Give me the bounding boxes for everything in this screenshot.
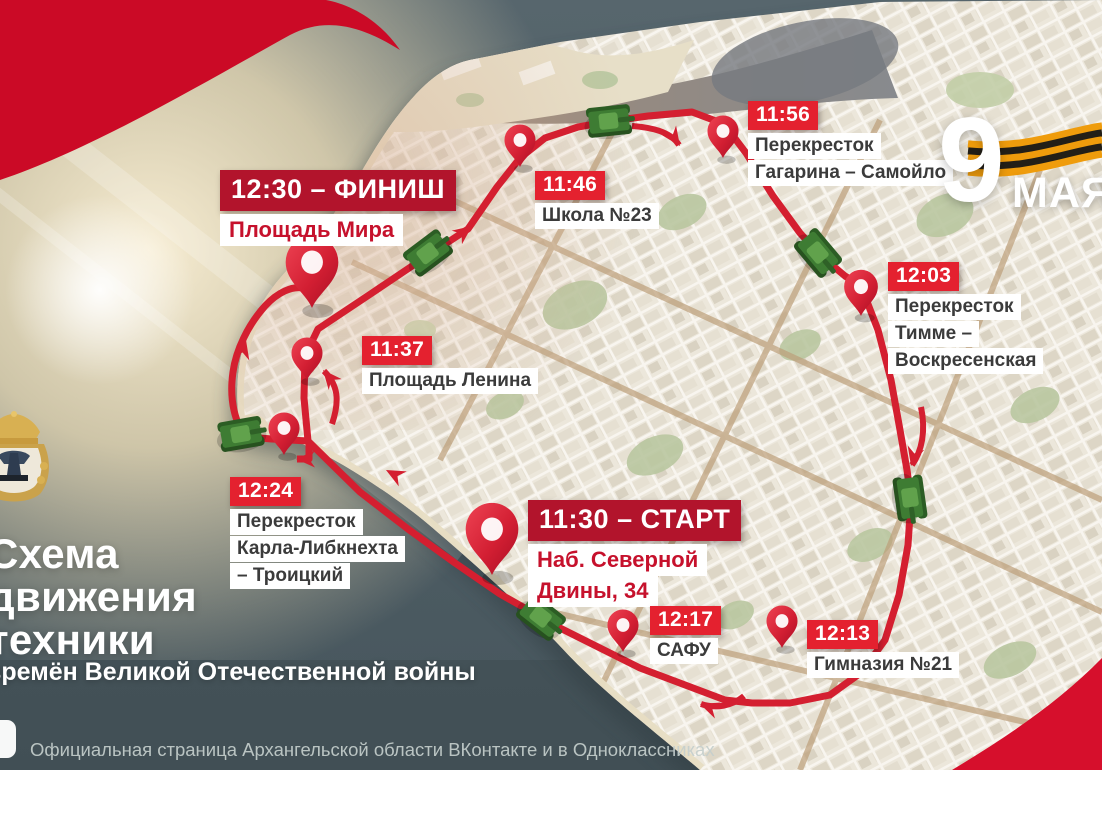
stop-label-timme: 12:03 Перекресток Тимме – Воскресенская [888, 262, 1102, 375]
stop-label-gymnasium: 12:13 Гимназия №21 [807, 620, 959, 679]
start-label-group: 11:30 – СТАРТ Наб. Северной Двины, 34 [528, 500, 758, 606]
stop-label-safu: 12:17 САФУ [650, 606, 721, 665]
stop-location-label: Школа №23 [535, 203, 659, 230]
stop-label-karla-libknehta: 12:24 Перекресток Карла-Либкнехта – Трои… [230, 477, 405, 590]
stop-label-samoylo: 11:56 Перекресток Гагарина – Самойло [748, 101, 953, 187]
stop-time-badge: 12:03 [888, 262, 959, 291]
stop-time-badge: 11:37 [362, 336, 432, 365]
stop-label-school23: 11:46 Школа №23 [535, 171, 659, 230]
victory-day-route-poster: 12:30 – ФИНИШ Площадь Мира 11:30 – СТАРТ… [0, 0, 1102, 826]
labels-overlay: 12:30 – ФИНИШ Площадь Мира 11:30 – СТАРТ… [0, 0, 1102, 770]
finish-time-badge: 12:30 – ФИНИШ [220, 170, 456, 211]
stop-location-label: Перекресток Тимме – Воскресенская [888, 294, 1102, 375]
start-location-label: Наб. Северной Двины, 34 [528, 544, 758, 606]
bottom-white-strip [0, 770, 1102, 826]
stop-time-badge: 12:13 [807, 620, 878, 649]
start-time-badge: 11:30 – СТАРТ [528, 500, 741, 541]
logo-9-may-day: 9 [938, 100, 1005, 220]
stop-location-label: САФУ [650, 638, 721, 665]
stop-location-label: Перекресток Карла-Либкнехта – Троицкий [230, 509, 405, 590]
stop-time-badge: 11:56 [748, 101, 818, 130]
stop-time-badge: 12:24 [230, 477, 301, 506]
footer-logo-tile [0, 720, 16, 758]
footer-text: Официальная страница Архангельской облас… [30, 739, 715, 761]
stop-location-label: Перекресток Гагарина – Самойло [748, 133, 953, 187]
stop-location-label: Площадь Ленина [362, 368, 538, 395]
stop-label-lenina: 11:37 Площадь Ленина [362, 336, 538, 395]
logo-9-may-month: МАЯ [1012, 172, 1102, 215]
finish-label-group: 12:30 – ФИНИШ Площадь Мира [220, 170, 456, 245]
finish-location-label: Площадь Мира [220, 214, 450, 245]
poster-title: Схема движения техники [0, 532, 197, 661]
poster-subtitle: времён Великой Отечественной войны [0, 658, 476, 687]
stop-time-badge: 12:17 [650, 606, 721, 635]
stop-time-badge: 11:46 [535, 171, 605, 200]
stop-location-label: Гимназия №21 [807, 652, 959, 679]
